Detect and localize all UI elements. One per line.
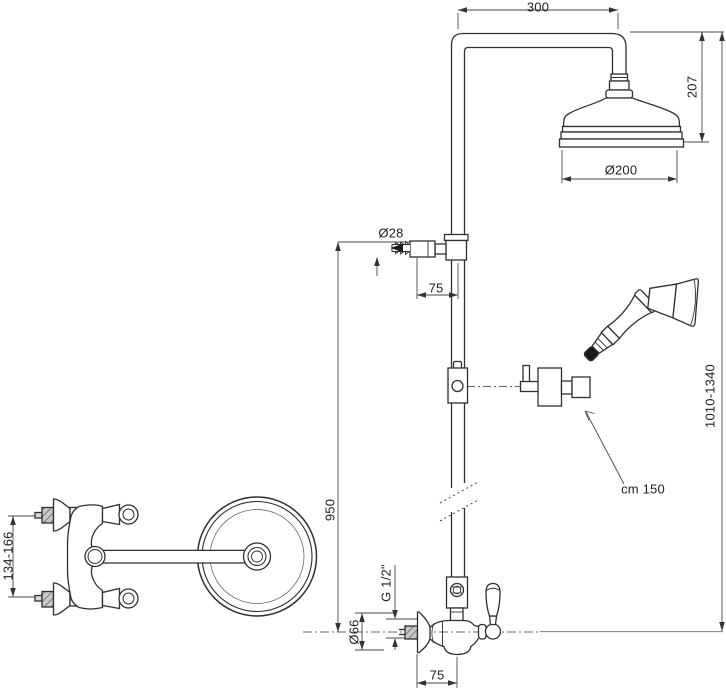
dim-label-inlet-spacing: 134-166 bbox=[2, 531, 15, 580]
hand-shower-head bbox=[646, 274, 699, 327]
inlet-thread-hot bbox=[42, 508, 54, 524]
dim-label-escutcheon-diameter: Ø66 bbox=[348, 619, 361, 644]
inlet-thread-cold bbox=[42, 592, 54, 608]
technical-drawing-canvas bbox=[0, 0, 726, 690]
dim-label-valve-depth: 75 bbox=[430, 669, 445, 682]
dim-label-riser-height: 950 bbox=[324, 499, 337, 521]
overhead-shower-head bbox=[560, 74, 684, 147]
wall-bracket bbox=[521, 366, 591, 407]
valve-centerline bbox=[303, 387, 723, 633]
dim-label-outlet-depth: 75 bbox=[429, 282, 444, 295]
label-inlet-thread: G 1/2" bbox=[380, 564, 393, 602]
technical-drawing-page: 300 207 Ø200 1010-1340 Ø28 75 cm 150 950… bbox=[0, 0, 726, 690]
dim-label-arm-width: 300 bbox=[527, 1, 549, 14]
dim-label-head-height: 207 bbox=[686, 76, 699, 98]
label-hose-length: cm 150 bbox=[621, 483, 665, 496]
valve-escutcheon bbox=[418, 612, 431, 653]
inlet-escutcheon-bottom bbox=[54, 583, 71, 615]
handle-neck-bottom bbox=[103, 589, 120, 609]
hand-shower-slider bbox=[448, 362, 468, 404]
handle-neck-top bbox=[103, 505, 120, 525]
wall-connection-thread bbox=[405, 626, 418, 639]
pipe-break-marks bbox=[440, 482, 478, 521]
dim-label-overall-height: 1010-1340 bbox=[704, 364, 717, 428]
hand-shower bbox=[576, 252, 721, 395]
mixer-valve-side-view bbox=[399, 577, 501, 655]
inlet-escutcheon-top bbox=[54, 499, 71, 531]
valve-lever-handle bbox=[486, 584, 501, 640]
dim-label-head-diameter: Ø200 bbox=[605, 164, 638, 177]
dim-label-outlet-diameter: Ø28 bbox=[378, 227, 403, 240]
